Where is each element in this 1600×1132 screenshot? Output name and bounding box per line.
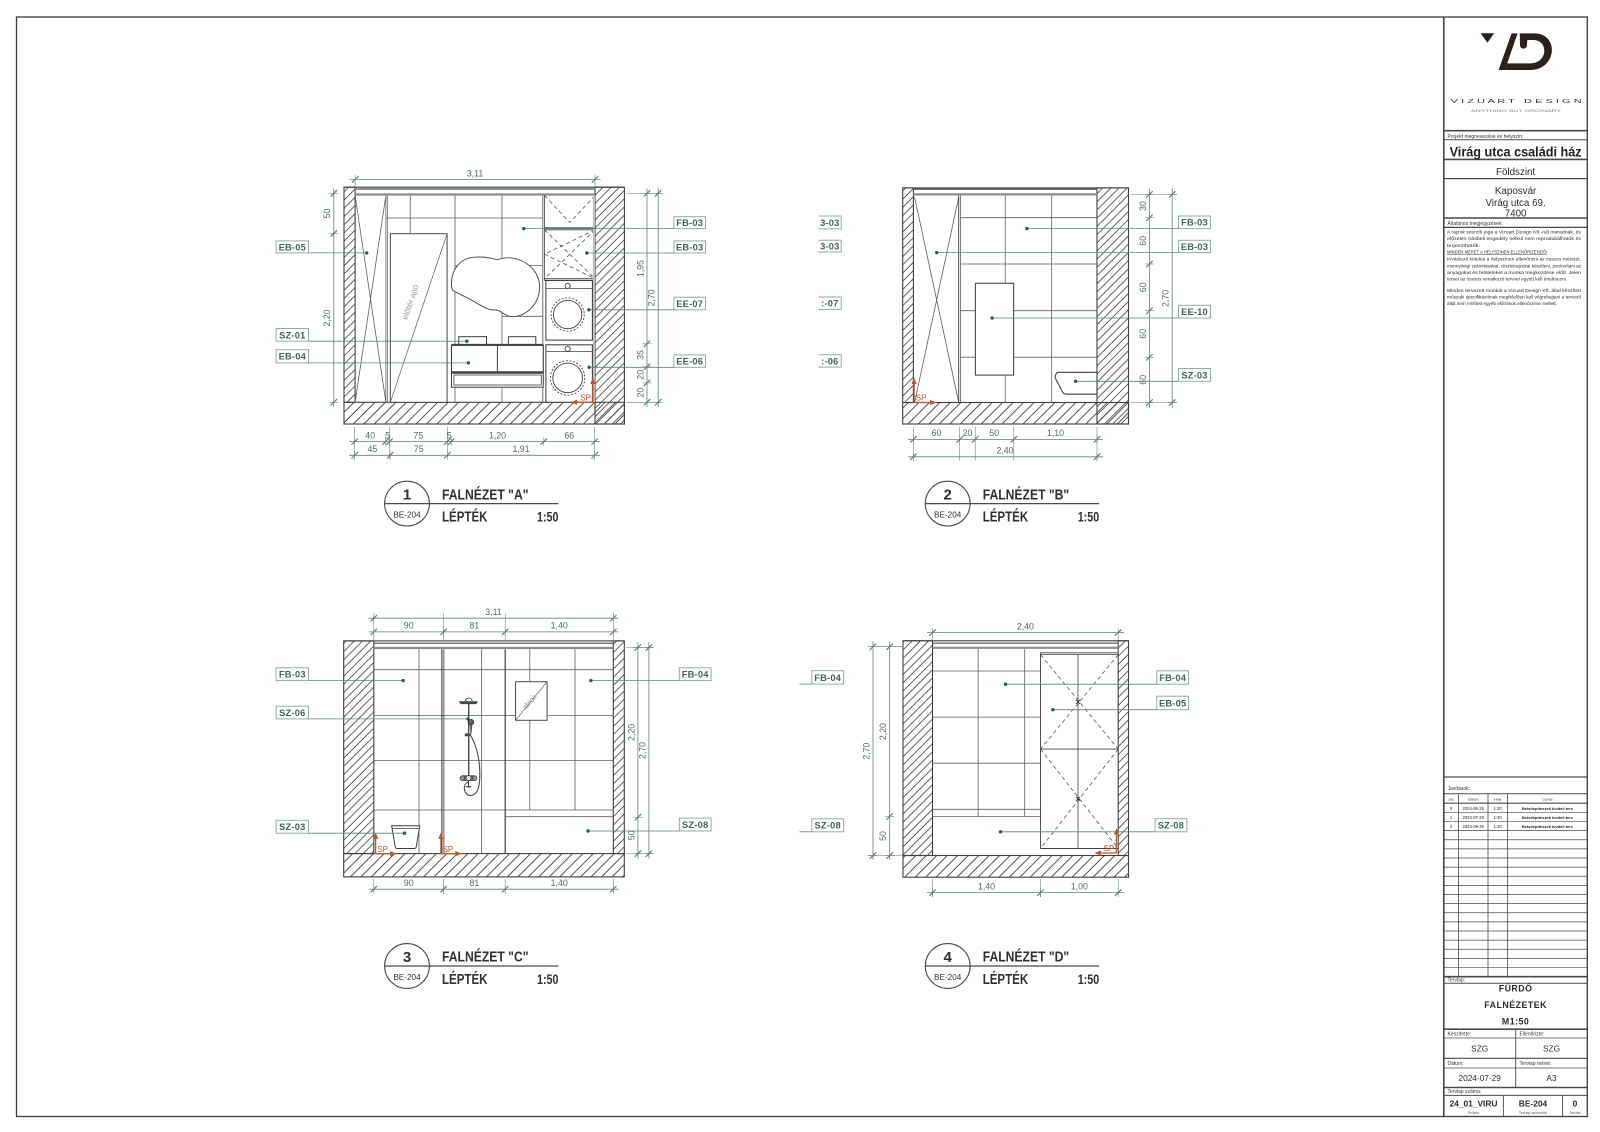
svg-text:FALNÉZET "B": FALNÉZET "B" bbox=[983, 486, 1069, 503]
svg-text:1:50: 1:50 bbox=[1078, 971, 1100, 987]
svg-text:Tervlap:: Tervlap: bbox=[1448, 978, 1466, 984]
svg-text:Ellenőrizte:: Ellenőrizte: bbox=[1520, 1031, 1545, 1037]
svg-text:0: 0 bbox=[1573, 1099, 1578, 1109]
svg-text:Minden tervezett munkát a Vizu: Minden tervezett munkát a Vizuart Design… bbox=[1447, 288, 1582, 294]
svg-text:60: 60 bbox=[1138, 236, 1148, 246]
svg-text:2,70: 2,70 bbox=[861, 742, 871, 759]
svg-text:50: 50 bbox=[626, 830, 636, 840]
svg-text:2,40: 2,40 bbox=[996, 446, 1013, 456]
svg-text:FÜRDŐ: FÜRDŐ bbox=[1499, 983, 1533, 994]
svg-text:50: 50 bbox=[878, 831, 888, 841]
svg-text:Földszint: Földszint bbox=[1496, 167, 1535, 178]
svg-text:66: 66 bbox=[564, 430, 574, 440]
svg-text:30: 30 bbox=[1138, 201, 1148, 211]
svg-text:SZ-08: SZ-08 bbox=[1158, 821, 1184, 831]
svg-text:1:50: 1:50 bbox=[537, 971, 559, 987]
svg-text:1:20: 1:20 bbox=[1494, 815, 1503, 820]
svg-text:SZ-03: SZ-03 bbox=[1181, 370, 1207, 380]
svg-text:BE-204: BE-204 bbox=[393, 511, 421, 520]
svg-text:SZ-01: SZ-01 bbox=[279, 330, 305, 340]
svg-text:FB-03: FB-03 bbox=[279, 670, 306, 680]
svg-text:24_01_VIRU: 24_01_VIRU bbox=[1450, 1099, 1498, 1109]
svg-text:ANYTHING BUT ORDINARY: ANYTHING BUT ORDINARY bbox=[1471, 109, 1562, 113]
svg-text:Javítások:: Javítások: bbox=[1448, 786, 1471, 792]
svg-text:Belsőépítészeti kiviteli terv: Belsőépítészeti kiviteli terv bbox=[1522, 815, 1574, 820]
svg-text:20: 20 bbox=[635, 388, 645, 398]
svg-text:40: 40 bbox=[365, 430, 375, 440]
svg-text:Tervlap azonosító: Tervlap azonosító bbox=[1519, 1111, 1547, 1115]
svg-text:Kivitelező köteles a helyszíne: Kivitelező köteles a helyszínen ellenőri… bbox=[1447, 257, 1581, 263]
svg-text:5: 5 bbox=[447, 430, 452, 440]
svg-text:2,70: 2,70 bbox=[1161, 290, 1171, 307]
svg-text:2,20: 2,20 bbox=[626, 724, 636, 741]
svg-text:2,70: 2,70 bbox=[647, 289, 657, 306]
svg-text:Tervlap száma:: Tervlap száma: bbox=[1448, 1089, 1482, 1095]
svg-text:60: 60 bbox=[932, 428, 942, 438]
svg-text:20: 20 bbox=[635, 370, 645, 380]
svg-text:Dátum: Dátum bbox=[1468, 798, 1479, 802]
svg-text:4: 4 bbox=[944, 949, 953, 966]
svg-text:SP: SP bbox=[1104, 844, 1115, 853]
svg-text:Virág utca családi ház: Virág utca családi ház bbox=[1450, 144, 1582, 160]
svg-text:LÉPTÉK: LÉPTÉK bbox=[442, 509, 488, 526]
svg-text:1: 1 bbox=[403, 486, 411, 503]
svg-text:mennyiségi számításokat, részl: mennyiségi számításokat, részletrajzokat… bbox=[1447, 263, 1582, 269]
svg-text:2,40: 2,40 bbox=[1017, 621, 1034, 631]
svg-text:A rajzok szerzői joga a Vizuar: A rajzok szerzői joga a Vizuart Design K… bbox=[1447, 229, 1582, 235]
svg-text:5: 5 bbox=[385, 430, 390, 440]
svg-text:60: 60 bbox=[1138, 375, 1148, 385]
svg-text:tervet az összes vonatkozó ter: tervet az összes vonatkozó tervvel együt… bbox=[1447, 277, 1567, 283]
svg-text:1,40: 1,40 bbox=[551, 621, 568, 631]
svg-text:Kaposvár: Kaposvár bbox=[1495, 186, 1537, 197]
svg-text:műszaki specifikációnak megfel: műszaki specifikációnak megfelelően kell… bbox=[1447, 295, 1581, 301]
svg-text:3,11: 3,11 bbox=[467, 168, 484, 178]
svg-text:LÉPTÉK: LÉPTÉK bbox=[983, 509, 1029, 526]
svg-text:EB-04: EB-04 bbox=[279, 352, 307, 362]
svg-text:Belsőépítészeti kiviteli terv: Belsőépítészeti kiviteli terv bbox=[1522, 824, 1574, 829]
svg-text:EB-05: EB-05 bbox=[1159, 698, 1186, 708]
svg-text:81: 81 bbox=[470, 621, 480, 631]
svg-text:LÉPTÉK: LÉPTÉK bbox=[442, 971, 488, 988]
svg-text:0: 0 bbox=[1450, 806, 1453, 811]
svg-text:terjeszthetők.: terjeszthetők. bbox=[1447, 243, 1480, 249]
svg-text:FALNÉZETEK: FALNÉZETEK bbox=[1484, 1000, 1547, 1010]
svg-text:7400: 7400 bbox=[1505, 209, 1527, 220]
svg-text:FB-03: FB-03 bbox=[1181, 218, 1208, 228]
svg-text:1:20: 1:20 bbox=[1494, 806, 1503, 811]
svg-text:anyagokat és felületeket a mun: anyagokat és felületeket a munka megkezd… bbox=[1447, 270, 1581, 276]
svg-text:20: 20 bbox=[963, 428, 973, 438]
svg-text::-06: :-06 bbox=[821, 356, 838, 366]
svg-text:EB-03: EB-03 bbox=[1181, 242, 1208, 252]
svg-text:1,00: 1,00 bbox=[1071, 881, 1088, 891]
svg-text:75: 75 bbox=[414, 430, 424, 440]
svg-text:M1:50: M1:50 bbox=[1502, 1017, 1529, 1027]
svg-text:75: 75 bbox=[414, 444, 424, 454]
svg-text:SZ-06: SZ-06 bbox=[279, 708, 305, 718]
svg-text:EE-06: EE-06 bbox=[676, 357, 703, 367]
svg-text:1:20: 1:20 bbox=[1494, 824, 1503, 829]
svg-text:Javítás: Javítás bbox=[1569, 1111, 1581, 1115]
svg-text:1,95: 1,95 bbox=[635, 260, 645, 277]
svg-text:Projekt megnevezése és helyszí: Projekt megnevezése és helyszín: bbox=[1448, 134, 1524, 140]
svg-text:FALNÉZET "C": FALNÉZET "C" bbox=[442, 949, 529, 966]
svg-text:FB-03: FB-03 bbox=[676, 218, 703, 228]
svg-text:BE-204: BE-204 bbox=[934, 973, 962, 982]
svg-text:előzetes írásbeli engedély nél: előzetes írásbeli engedély nélkül nem re… bbox=[1447, 236, 1582, 242]
svg-text:Jav.: Jav. bbox=[1448, 798, 1454, 802]
svg-text:V I Z U A R T D E S I G N: V I Z U A R T D E S I G N bbox=[1451, 99, 1582, 105]
svg-text:EE-10: EE-10 bbox=[1181, 307, 1208, 317]
svg-text:SZG: SZG bbox=[1543, 1044, 1560, 1054]
svg-text:FB-04: FB-04 bbox=[1159, 673, 1186, 683]
svg-text:1,40: 1,40 bbox=[551, 878, 568, 888]
svg-text:BE-204: BE-204 bbox=[1519, 1099, 1548, 1109]
svg-text:EB-05: EB-05 bbox=[279, 242, 306, 252]
svg-text:BE-204: BE-204 bbox=[393, 973, 421, 982]
svg-text::-07: :-07 bbox=[821, 299, 838, 309]
svg-text:EE-07: EE-07 bbox=[676, 299, 703, 309]
svg-text:Dátum:: Dátum: bbox=[1448, 1061, 1464, 1067]
svg-text:SP: SP bbox=[916, 393, 927, 402]
svg-text:Virág utca 69.: Virág utca 69. bbox=[1485, 198, 1545, 209]
svg-text:Leírás: Leírás bbox=[1543, 798, 1553, 802]
svg-text:2024-07-29: 2024-07-29 bbox=[1458, 1073, 1501, 1083]
svg-text:2024-09-30: 2024-09-30 bbox=[1462, 824, 1484, 829]
svg-text:SP: SP bbox=[377, 845, 388, 854]
svg-text:FB-04: FB-04 bbox=[814, 673, 841, 683]
svg-text:Belsőépítészeti kiviteli terv: Belsőépítészeti kiviteli terv bbox=[1522, 806, 1574, 811]
svg-text:60: 60 bbox=[1138, 329, 1148, 339]
svg-text:3-03: 3-03 bbox=[820, 218, 839, 228]
svg-text:2: 2 bbox=[944, 486, 952, 503]
svg-text:2,20: 2,20 bbox=[878, 723, 888, 740]
svg-text:SP: SP bbox=[443, 845, 454, 854]
svg-text:Hely: Hely bbox=[1494, 798, 1501, 802]
svg-text:Tervlap méret:: Tervlap méret: bbox=[1520, 1061, 1552, 1067]
svg-text:1: 1 bbox=[1450, 815, 1453, 820]
svg-text:A3: A3 bbox=[1546, 1073, 1557, 1083]
svg-text:FALNÉZET "A": FALNÉZET "A" bbox=[442, 486, 529, 503]
svg-text:1,10: 1,10 bbox=[1047, 428, 1064, 438]
svg-text:SP: SP bbox=[580, 393, 591, 402]
svg-text:1:50: 1:50 bbox=[537, 509, 559, 525]
svg-text:60: 60 bbox=[1138, 282, 1148, 292]
svg-text:Általános megjegyzések:: Általános megjegyzések: bbox=[1448, 220, 1503, 227]
svg-text:SZ-03: SZ-03 bbox=[279, 822, 305, 832]
svg-text:35: 35 bbox=[635, 350, 645, 360]
svg-text:50: 50 bbox=[322, 209, 332, 219]
svg-text:EB-03: EB-03 bbox=[676, 242, 703, 252]
svg-text:által nem említett egyéb előír: által nem említett egyéb előírások ellen… bbox=[1447, 301, 1557, 307]
svg-text:SZ-08: SZ-08 bbox=[682, 820, 708, 830]
svg-text:3,11: 3,11 bbox=[485, 607, 502, 617]
svg-text:2024-07-29: 2024-07-29 bbox=[1462, 815, 1484, 820]
svg-text:SZG: SZG bbox=[1471, 1044, 1488, 1054]
svg-text:FALNÉZET "D": FALNÉZET "D" bbox=[983, 949, 1069, 966]
svg-text:SZ-08: SZ-08 bbox=[815, 821, 841, 831]
svg-text:BE-204: BE-204 bbox=[934, 511, 962, 520]
svg-text:90: 90 bbox=[404, 878, 414, 888]
svg-text:2,70: 2,70 bbox=[637, 742, 647, 759]
svg-text:3-03: 3-03 bbox=[820, 242, 839, 252]
svg-text:Készítette:: Készítette: bbox=[1448, 1031, 1472, 1037]
svg-text:FB-04: FB-04 bbox=[682, 670, 709, 680]
svg-text:1:50: 1:50 bbox=[1078, 509, 1100, 525]
svg-text:2024-06-26: 2024-06-26 bbox=[1462, 806, 1484, 811]
svg-text:50: 50 bbox=[989, 428, 999, 438]
svg-text:81: 81 bbox=[470, 878, 480, 888]
svg-text:LÉPTÉK: LÉPTÉK bbox=[983, 971, 1029, 988]
svg-text:3: 3 bbox=[403, 949, 411, 966]
svg-text:1,20: 1,20 bbox=[489, 430, 506, 440]
svg-text:Projekt: Projekt bbox=[1468, 1111, 1479, 1115]
svg-text:2,20: 2,20 bbox=[322, 309, 332, 326]
svg-text:1,40: 1,40 bbox=[978, 881, 995, 891]
svg-text:1,91: 1,91 bbox=[512, 444, 529, 454]
svg-text:45: 45 bbox=[368, 444, 378, 454]
svg-text:2: 2 bbox=[1450, 824, 1453, 829]
svg-text:90: 90 bbox=[404, 621, 414, 631]
